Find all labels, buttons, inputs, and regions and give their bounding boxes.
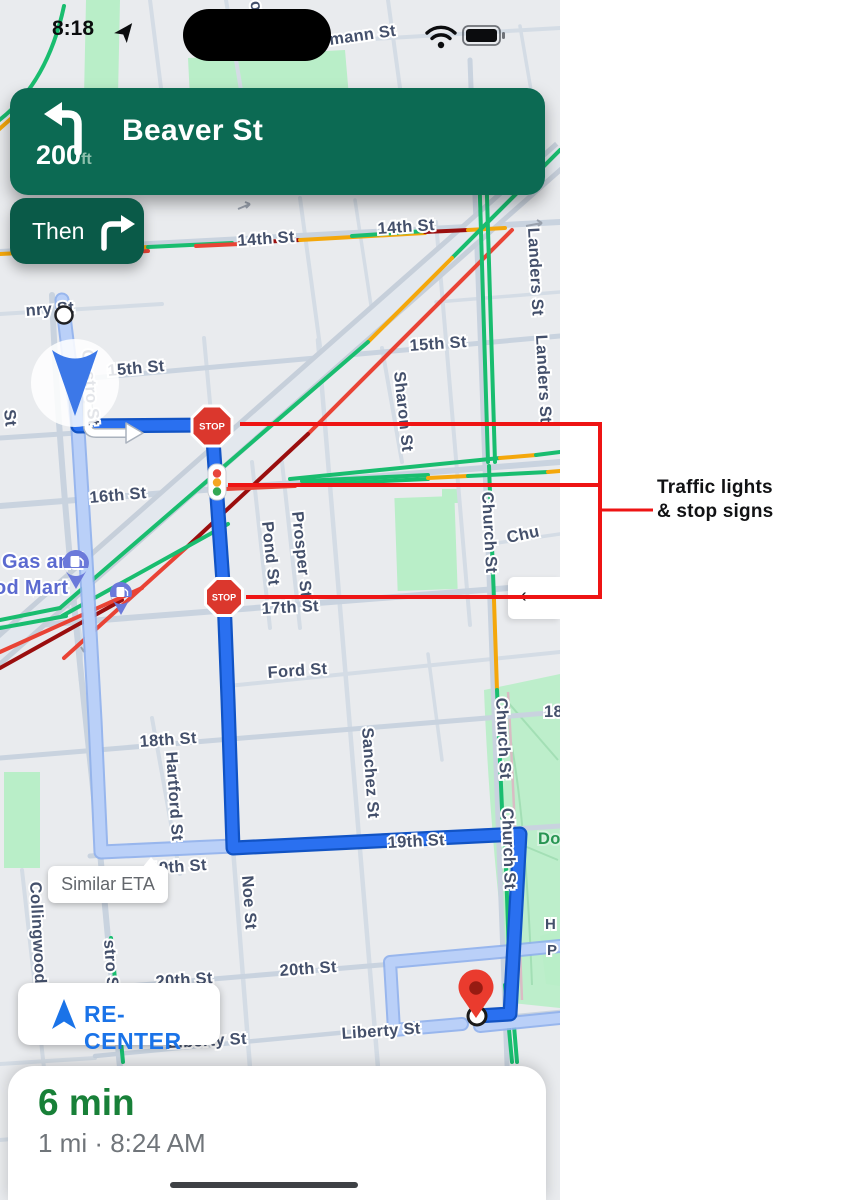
navigation-banner[interactable]: 200ft Beaver St bbox=[10, 88, 545, 195]
screenshot-stage: ott St mann St 14th St 14th St Landers S… bbox=[0, 0, 850, 1200]
street-label: Church St bbox=[498, 808, 519, 890]
navigation-arrow-icon bbox=[48, 997, 80, 1031]
trip-details: 1 mi · 8:24 AM bbox=[38, 1128, 206, 1159]
location-active-icon bbox=[114, 19, 138, 43]
street-label: 17th St bbox=[261, 597, 319, 618]
trip-eta: 6 min bbox=[38, 1082, 135, 1124]
street-label: H bbox=[545, 916, 556, 933]
similar-eta-label: Similar ETA bbox=[48, 874, 168, 895]
wifi-icon bbox=[424, 24, 458, 50]
stop-sign-icon: STOP bbox=[204, 577, 244, 617]
street-label: 19th St bbox=[387, 831, 445, 852]
side-sheet-edge[interactable]: ‹ bbox=[508, 577, 560, 619]
poi-label: od Mart bbox=[0, 577, 68, 599]
current-location-puck bbox=[31, 339, 119, 427]
phone-screenshot: ott St mann St 14th St 14th St Landers S… bbox=[0, 0, 560, 1200]
turn-right-icon bbox=[94, 212, 142, 252]
street-label: Noe St bbox=[238, 875, 260, 930]
park-label: Dol bbox=[538, 830, 560, 848]
maneuver-street: Beaver St bbox=[122, 114, 263, 148]
similar-eta-tooltip[interactable]: Similar ETA bbox=[48, 866, 168, 903]
chevron-left-icon: ‹ bbox=[520, 585, 527, 608]
distance-unit: ft bbox=[81, 151, 92, 168]
tooltip-pointer bbox=[142, 857, 160, 868]
street-label: 18 bbox=[544, 703, 560, 721]
home-indicator[interactable] bbox=[170, 1182, 358, 1188]
svg-text:STOP: STOP bbox=[212, 593, 236, 603]
status-bar-time: 8:18 bbox=[52, 17, 94, 41]
maneuver-distance: 200ft bbox=[36, 140, 92, 171]
street-label: St bbox=[0, 409, 20, 428]
traffic-light-icon bbox=[208, 464, 226, 500]
stop-sign-icon: STOP bbox=[191, 405, 234, 448]
recenter-button[interactable]: RE-CENTER bbox=[18, 983, 220, 1045]
annotation-text: Traffic lights & stop signs bbox=[657, 476, 827, 524]
then-label: Then bbox=[32, 218, 84, 245]
notch bbox=[183, 9, 331, 61]
then-chip[interactable]: Then bbox=[10, 198, 144, 264]
street-label: P bbox=[547, 942, 557, 959]
annotation-line2: & stop signs bbox=[657, 500, 827, 524]
intersection-marker bbox=[56, 307, 73, 324]
recenter-label: RE-CENTER bbox=[84, 1001, 220, 1055]
annotation-line1: Traffic lights bbox=[657, 476, 827, 500]
svg-text:STOP: STOP bbox=[199, 422, 225, 433]
battery-icon bbox=[462, 24, 506, 48]
trip-summary-sheet[interactable]: 6 min 1 mi · 8:24 AM bbox=[8, 1066, 546, 1200]
